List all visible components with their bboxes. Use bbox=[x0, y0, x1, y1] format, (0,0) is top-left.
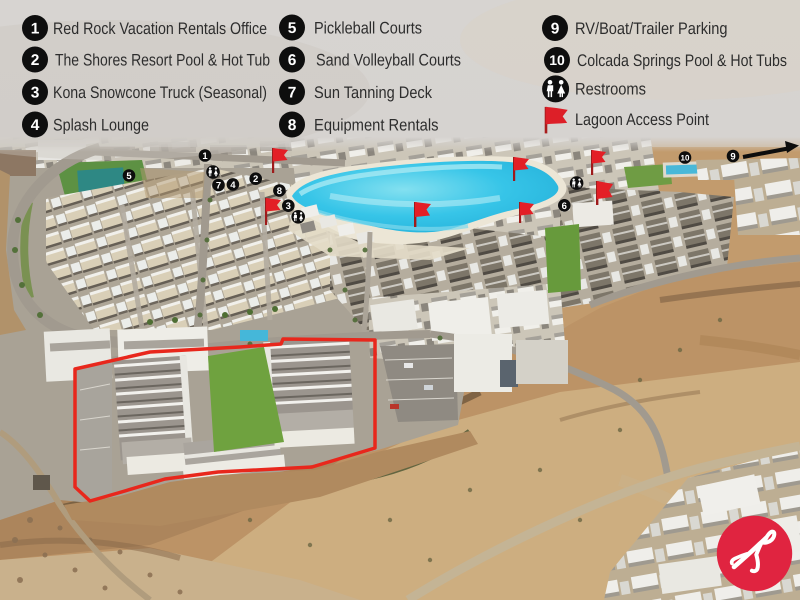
svg-text:4: 4 bbox=[31, 117, 40, 134]
svg-text:7: 7 bbox=[216, 181, 221, 192]
svg-text:Pickleball Courts: Pickleball Courts bbox=[314, 18, 422, 37]
svg-text:Sun Tanning Deck: Sun Tanning Deck bbox=[314, 83, 433, 102]
svg-text:6: 6 bbox=[288, 52, 297, 69]
svg-text:1: 1 bbox=[202, 151, 208, 162]
svg-text:2: 2 bbox=[253, 174, 258, 185]
svg-text:9: 9 bbox=[730, 152, 735, 163]
svg-text:8: 8 bbox=[288, 117, 297, 134]
svg-text:4: 4 bbox=[230, 180, 236, 191]
svg-text:Red Rock Vacation Rentals Offi: Red Rock Vacation Rentals Office bbox=[53, 19, 267, 38]
svg-text:5: 5 bbox=[288, 20, 297, 37]
svg-text:Kona Snowcone Truck (Seasonal): Kona Snowcone Truck (Seasonal) bbox=[53, 83, 267, 102]
svg-text:10: 10 bbox=[681, 154, 690, 163]
svg-text:Restrooms: Restrooms bbox=[575, 80, 646, 99]
svg-text:10: 10 bbox=[549, 52, 565, 68]
svg-text:6: 6 bbox=[562, 201, 567, 212]
svg-text:7: 7 bbox=[288, 85, 297, 102]
svg-text:3: 3 bbox=[286, 201, 291, 212]
svg-text:RV/Boat/Trailer Parking: RV/Boat/Trailer Parking bbox=[575, 19, 728, 38]
svg-text:5: 5 bbox=[126, 171, 132, 182]
svg-text:Lagoon Access Point: Lagoon Access Point bbox=[575, 110, 709, 129]
svg-text:8: 8 bbox=[277, 186, 282, 197]
svg-text:Sand Volleyball Courts: Sand Volleyball Courts bbox=[316, 50, 461, 69]
svg-text:1: 1 bbox=[31, 21, 40, 38]
svg-text:Splash Lounge: Splash Lounge bbox=[53, 115, 149, 134]
svg-text:9: 9 bbox=[551, 21, 560, 38]
svg-text:The Shores Resort Pool & Hot T: The Shores Resort Pool & Hot Tub bbox=[55, 50, 270, 69]
svg-text:2: 2 bbox=[31, 52, 40, 69]
svg-text:3: 3 bbox=[31, 85, 40, 102]
svg-text:Colcada Springs Pool & Hot Tub: Colcada Springs Pool & Hot Tubs bbox=[577, 51, 787, 70]
svg-text:Equipment Rentals: Equipment Rentals bbox=[314, 115, 439, 134]
